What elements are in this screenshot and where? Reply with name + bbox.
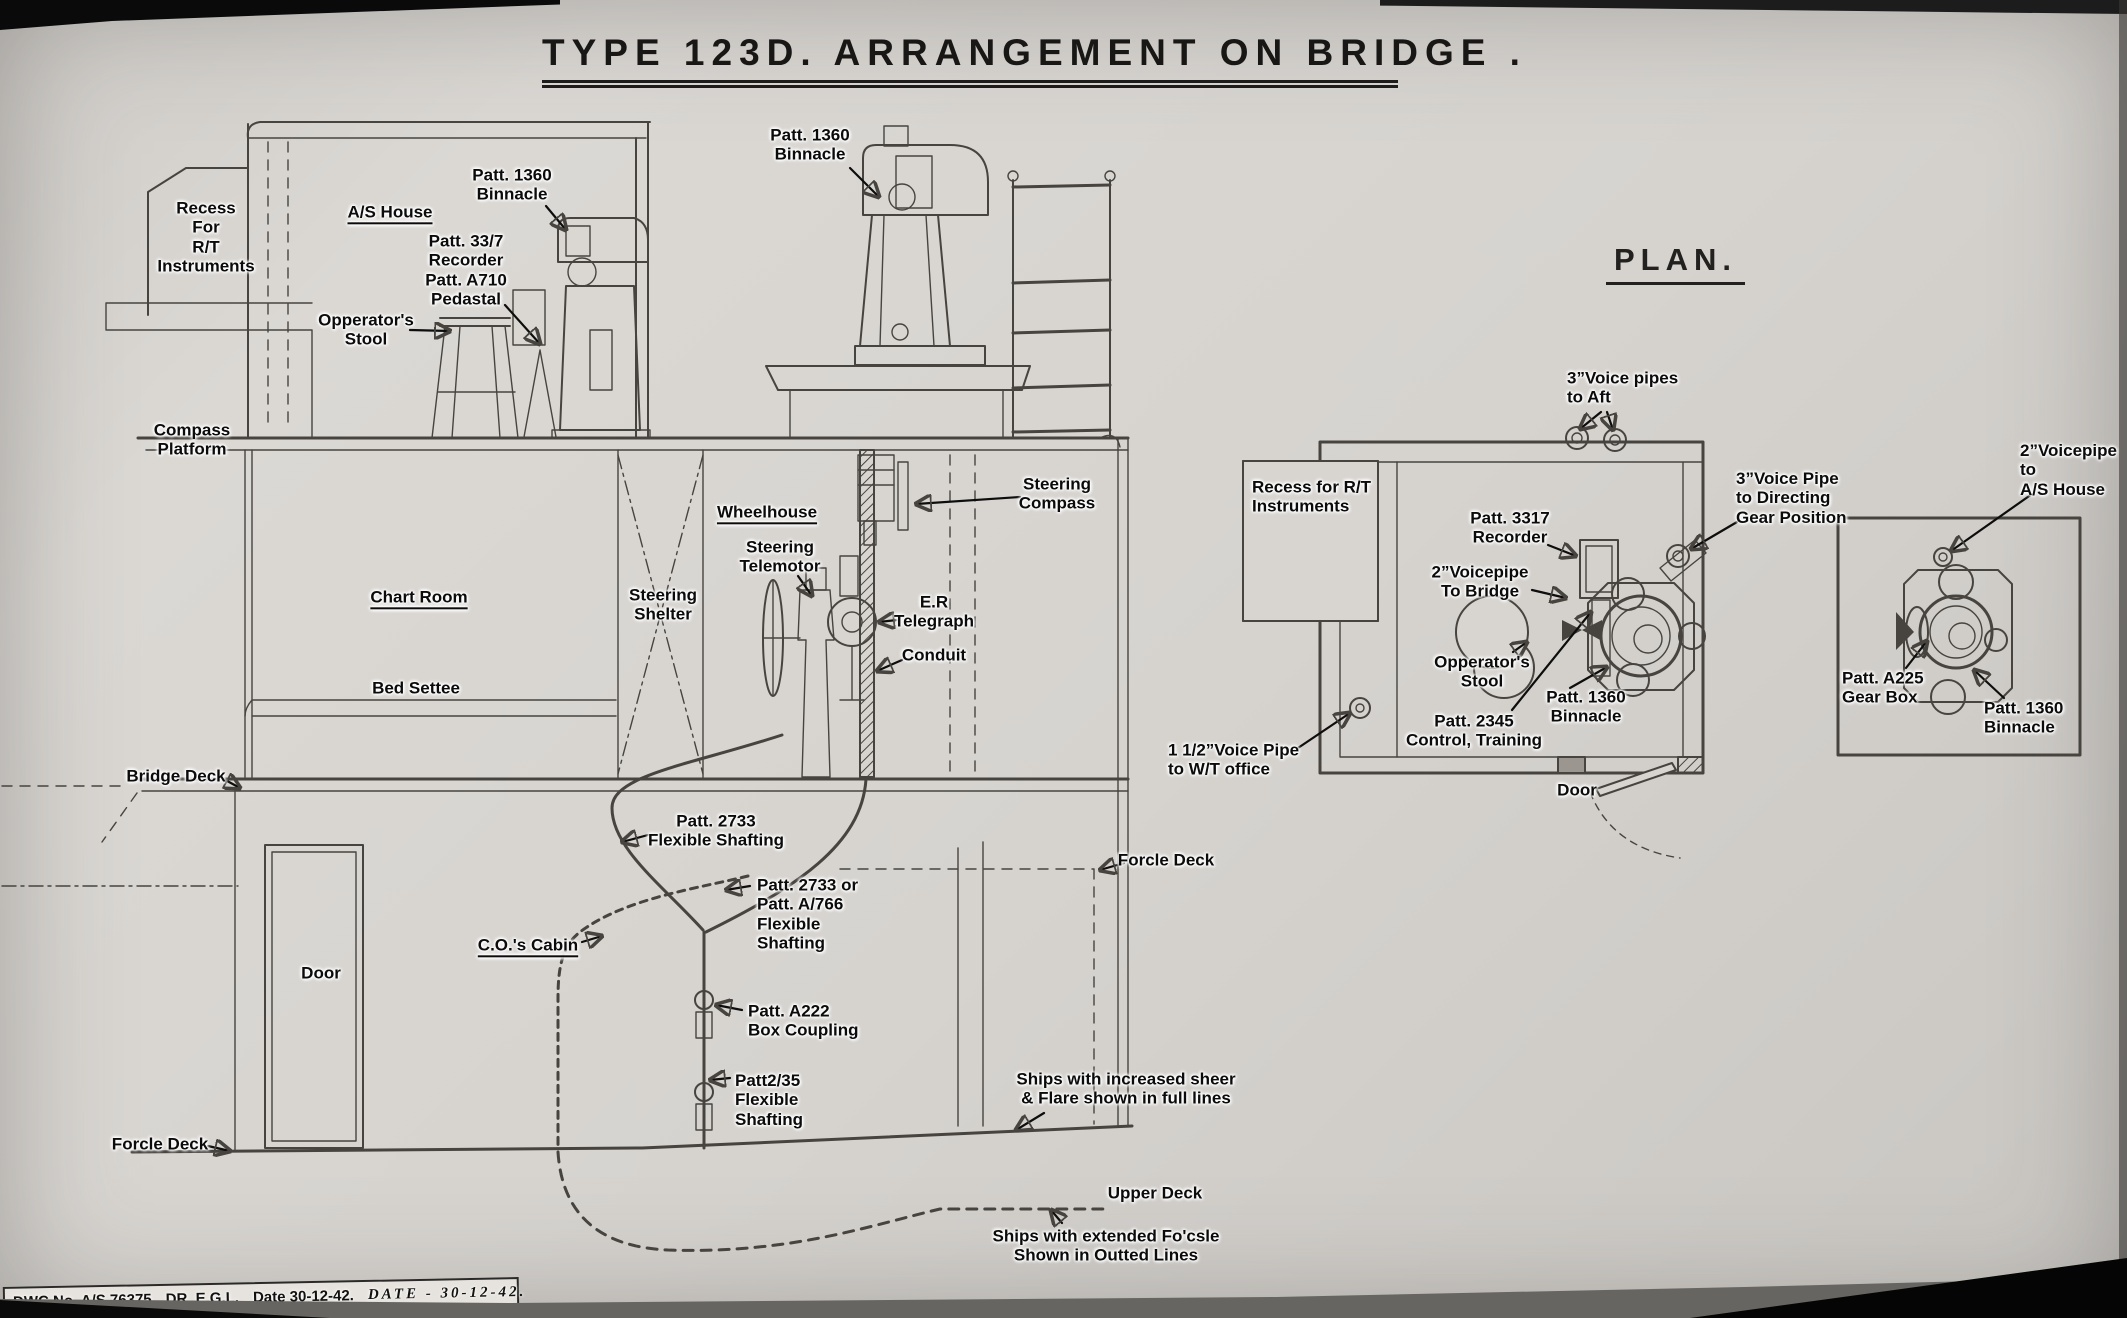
label-er-telegraph: E.R Telegraph	[894, 593, 974, 632]
label-voicepipe-as-house: 2”Voicepipe to A/S House	[2020, 441, 2127, 499]
label-ships-increased-sheer: Ships with increased sheer & Flare shown…	[1016, 1070, 1235, 1109]
drawing-title: TYPE 123D. ARRANGEMENT ON BRIDGE .	[542, 32, 1398, 88]
label-conduit: Conduit	[902, 645, 966, 664]
title-block-dr: DR. E.G.L.	[166, 1289, 240, 1307]
label-ships-extended-focsle: Ships with extended Fo'csle Shown in Out…	[993, 1227, 1220, 1266]
label-patt-337-recorder-pedastal: Patt. 33/7 Recorder Patt. A710 Pedastal	[425, 231, 507, 309]
label-forcle-deck-right: Forcle Deck	[1118, 850, 1214, 869]
label-bridge-deck: Bridge Deck	[126, 766, 225, 785]
title-block-date: Date 30-12-42.	[253, 1287, 354, 1306]
label-patt-3317-recorder: Patt. 3317 Recorder	[1470, 509, 1549, 548]
label-patt-2733-or-a766: Patt. 2733 or Patt. A/766 Flexible Shaft…	[757, 875, 858, 953]
label-steering-compass: Steering Compass	[1019, 475, 1096, 514]
label-bed-settee: Bed Settee	[372, 678, 460, 697]
title-block-handwritten-date: DATE - 30-12-42.	[368, 1283, 527, 1303]
label-wheelhouse: Wheelhouse	[717, 502, 817, 521]
label-voice-pipes-aft: 3”Voice pipes to Aft	[1567, 369, 1678, 408]
label-voice-pipe-directing-gear: 3”Voice Pipe to Directing Gear Position	[1736, 469, 1847, 527]
elevation-structure	[2, 122, 1132, 1152]
label-patt-a222-box-coupling: Patt. A222 Box Coupling	[748, 1002, 858, 1041]
label-cos-cabin: C.O.'s Cabin	[478, 935, 578, 954]
title-block-dwc-no: DWC No. A/S 76375	[13, 1291, 152, 1311]
label-patt-1360-binnacle-top: Patt. 1360 Binnacle	[770, 126, 849, 165]
label-patt-1360-binnacle-gearbox: Patt. 1360 Binnacle	[1984, 699, 2063, 738]
label-upper-deck: Upper Deck	[1108, 1183, 1202, 1202]
centre-binnacle-platform	[766, 126, 1120, 447]
label-door-elevation: Door	[301, 963, 341, 982]
label-patt-2345-control-training: Patt. 2345 Control, Training	[1406, 712, 1542, 751]
label-recess-rt-plan: Recess for R/T Instruments	[1252, 478, 1371, 517]
plan-heading: PLAN.	[1606, 242, 1745, 285]
label-voice-pipe-wt-office: 1 1/2”Voice Pipe to W/T office	[1168, 741, 1299, 780]
label-patt-1360-binnacle-plan: Patt. 1360 Binnacle	[1546, 688, 1625, 727]
technical-drawing	[0, 0, 2127, 1318]
label-voicepipe-2-bridge: 2”Voicepipe To Bridge	[1432, 563, 1529, 602]
label-steering-telemotor: Steering Telemotor	[740, 538, 821, 577]
label-forcle-deck-left: Forcle Deck	[112, 1134, 208, 1153]
label-operators-stool-elevation: Opperator's Stool	[318, 311, 414, 350]
label-as-house: A/S House	[347, 202, 432, 221]
label-patt-2-35-flexible-shafting: Patt2/35 Flexible Shafting	[735, 1071, 803, 1129]
label-recess-rt-instruments: Recess For R/T Instruments	[157, 198, 254, 276]
label-operators-stool-plan: Opperator's Stool	[1434, 653, 1530, 692]
label-chart-room: Chart Room	[370, 587, 467, 606]
label-door-plan: Door	[1557, 780, 1597, 799]
label-compass-platform: Compass Platform	[154, 421, 231, 460]
label-patt-2733-flexible-shafting: Patt. 2733 Flexible Shafting	[648, 812, 784, 851]
label-patt-1360-binnacle-house: Patt. 1360 Binnacle	[472, 166, 551, 205]
drawing-sheet: TYPE 123D. ARRANGEMENT ON BRIDGE . PLAN.…	[0, 0, 2127, 1318]
flexible-shafting	[558, 735, 1106, 1250]
label-steering-shelter: Steering Shelter	[629, 586, 697, 625]
label-patt-a225-gear-box: Patt. A225 Gear Box	[1842, 669, 1924, 708]
